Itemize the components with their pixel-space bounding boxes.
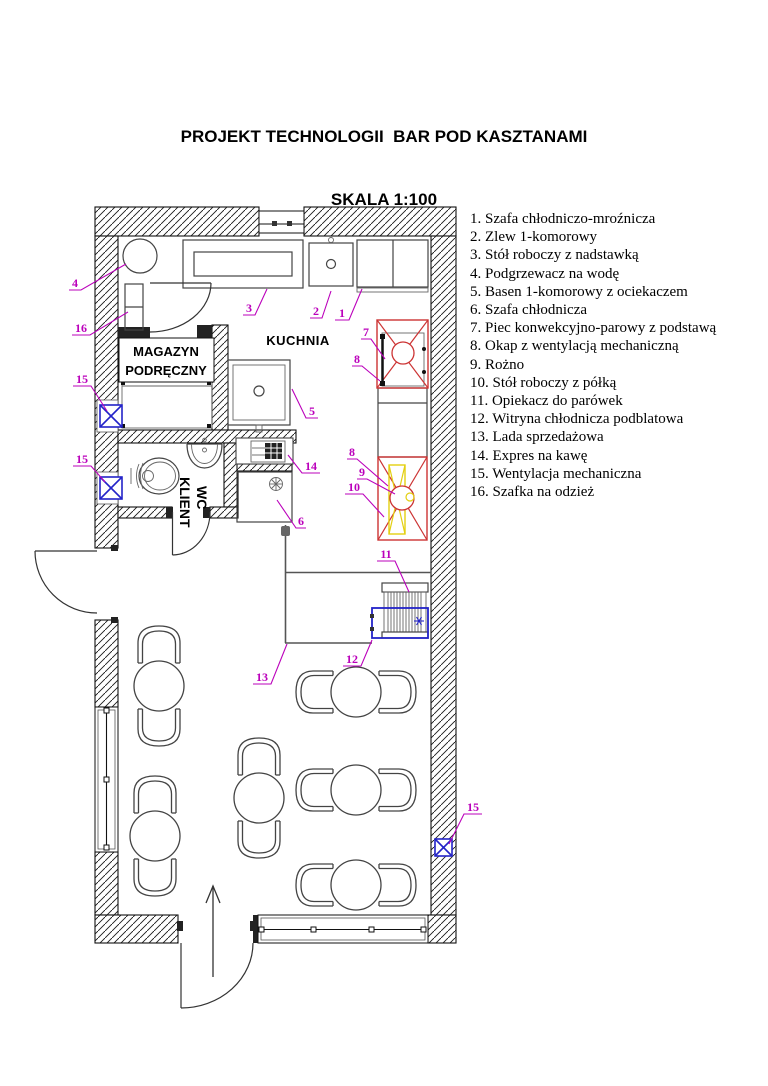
chair	[379, 769, 416, 811]
chair	[138, 709, 180, 746]
sales-counter-13	[281, 525, 431, 643]
hood-oven-7-8	[377, 320, 428, 388]
chair	[379, 864, 416, 906]
callout-number: 4	[72, 276, 78, 290]
callout-number: 3	[246, 301, 252, 315]
window-top	[259, 211, 304, 233]
toilet	[131, 458, 179, 494]
callout-leader	[352, 366, 380, 381]
callout-number: 2	[313, 304, 319, 318]
water-heater-4	[123, 239, 157, 273]
dining-table	[331, 765, 381, 815]
storage-label-line1: MAGAZYN	[133, 344, 199, 359]
callout-number: 10	[348, 480, 360, 494]
window-left	[95, 707, 118, 852]
room-label-kitchen: KUCHNIA	[266, 333, 330, 348]
side-exit-door	[35, 551, 97, 613]
chair	[296, 864, 333, 906]
callout-number: 8	[354, 352, 360, 366]
room-label-wc: WC KLIENT	[177, 477, 210, 528]
wc-label-line1: WC	[194, 486, 210, 509]
wall-posts	[111, 325, 259, 943]
callout-number: 5	[309, 404, 315, 418]
floor-plan: KUCHNIA MAGAZYN PODRĘCZNY WC KLIENT 1234…	[0, 0, 768, 1086]
dining-table	[234, 773, 284, 823]
room-label-storage: MAGAZYN PODRĘCZNY	[119, 338, 214, 382]
callout-number: 12	[346, 652, 358, 666]
callout-number: 7	[363, 325, 369, 339]
storage-door	[150, 283, 211, 332]
chair	[134, 859, 176, 896]
chair	[138, 626, 180, 663]
callout-number: 14	[305, 459, 317, 473]
callout-number: 13	[256, 670, 268, 684]
callout-number: 16	[75, 321, 87, 335]
chair	[379, 671, 416, 713]
vent-box-icon	[100, 405, 122, 427]
callout-number: 9	[359, 465, 365, 479]
chair	[134, 776, 176, 813]
dining-furniture	[130, 626, 416, 910]
callout-number: 15	[467, 800, 479, 814]
callout-number: 15	[76, 452, 88, 466]
dining-table	[331, 860, 381, 910]
fridge-freezer-1	[357, 240, 428, 292]
cold-cabinet-6	[237, 472, 292, 522]
callout-number: 11	[380, 547, 391, 561]
sink-2	[309, 238, 353, 287]
wc-label-line2: KLIENT	[177, 477, 193, 528]
shelf-table-10	[378, 388, 427, 457]
dining-table	[130, 811, 180, 861]
work-table-3	[183, 240, 303, 288]
storage-table	[121, 381, 212, 428]
callout-number: 8	[349, 445, 355, 459]
entrance-arrow	[206, 886, 220, 977]
callout-number: 6	[298, 514, 304, 528]
dining-table	[134, 661, 184, 711]
coffee-machine-14	[236, 438, 293, 464]
clothes-cabinet-16	[125, 284, 143, 330]
basin-5	[228, 360, 290, 432]
callout-number: 1	[339, 306, 345, 320]
chair	[296, 671, 333, 713]
chair	[238, 738, 280, 775]
callout-number: 15	[76, 372, 88, 386]
storage-label-line2: PODRĘCZNY	[125, 363, 207, 378]
sausage-grill-11	[382, 583, 428, 638]
chair	[296, 769, 333, 811]
hood-grill-8-9-10	[378, 457, 427, 540]
chair	[238, 821, 280, 858]
window-bottom	[258, 915, 428, 943]
dining-table	[331, 667, 381, 717]
entrance-door	[181, 943, 253, 1008]
display-fridge-12	[370, 608, 428, 638]
vent-box-icon	[435, 839, 452, 856]
